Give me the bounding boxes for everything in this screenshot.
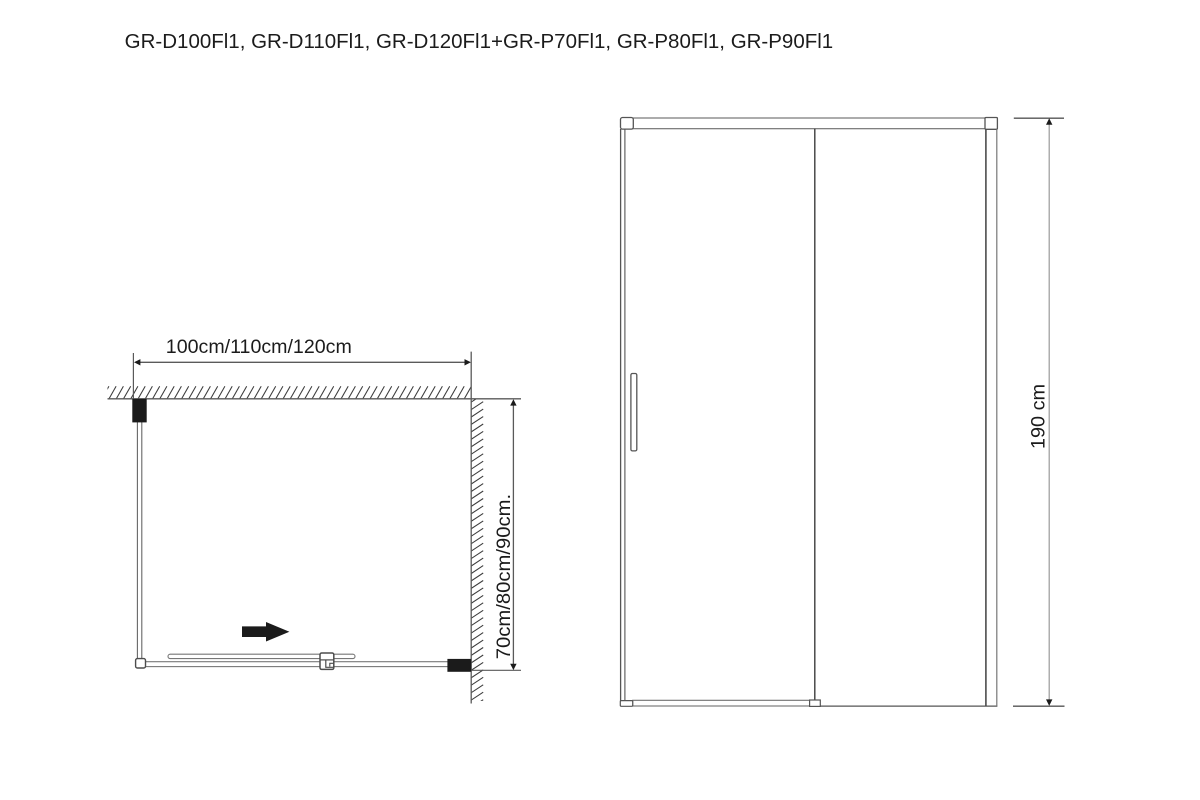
svg-text:100cm/110cm/120cm: 100cm/110cm/120cm [166,336,352,358]
svg-text:GR-D100Fl1, GR-D110Fl1, GR-D12: GR-D100Fl1, GR-D110Fl1, GR-D120Fl1+GR-P7… [125,31,834,53]
svg-text:70cm/80cm/90cm.: 70cm/80cm/90cm. [493,494,515,660]
svg-text:190 cm: 190 cm [1028,384,1050,449]
